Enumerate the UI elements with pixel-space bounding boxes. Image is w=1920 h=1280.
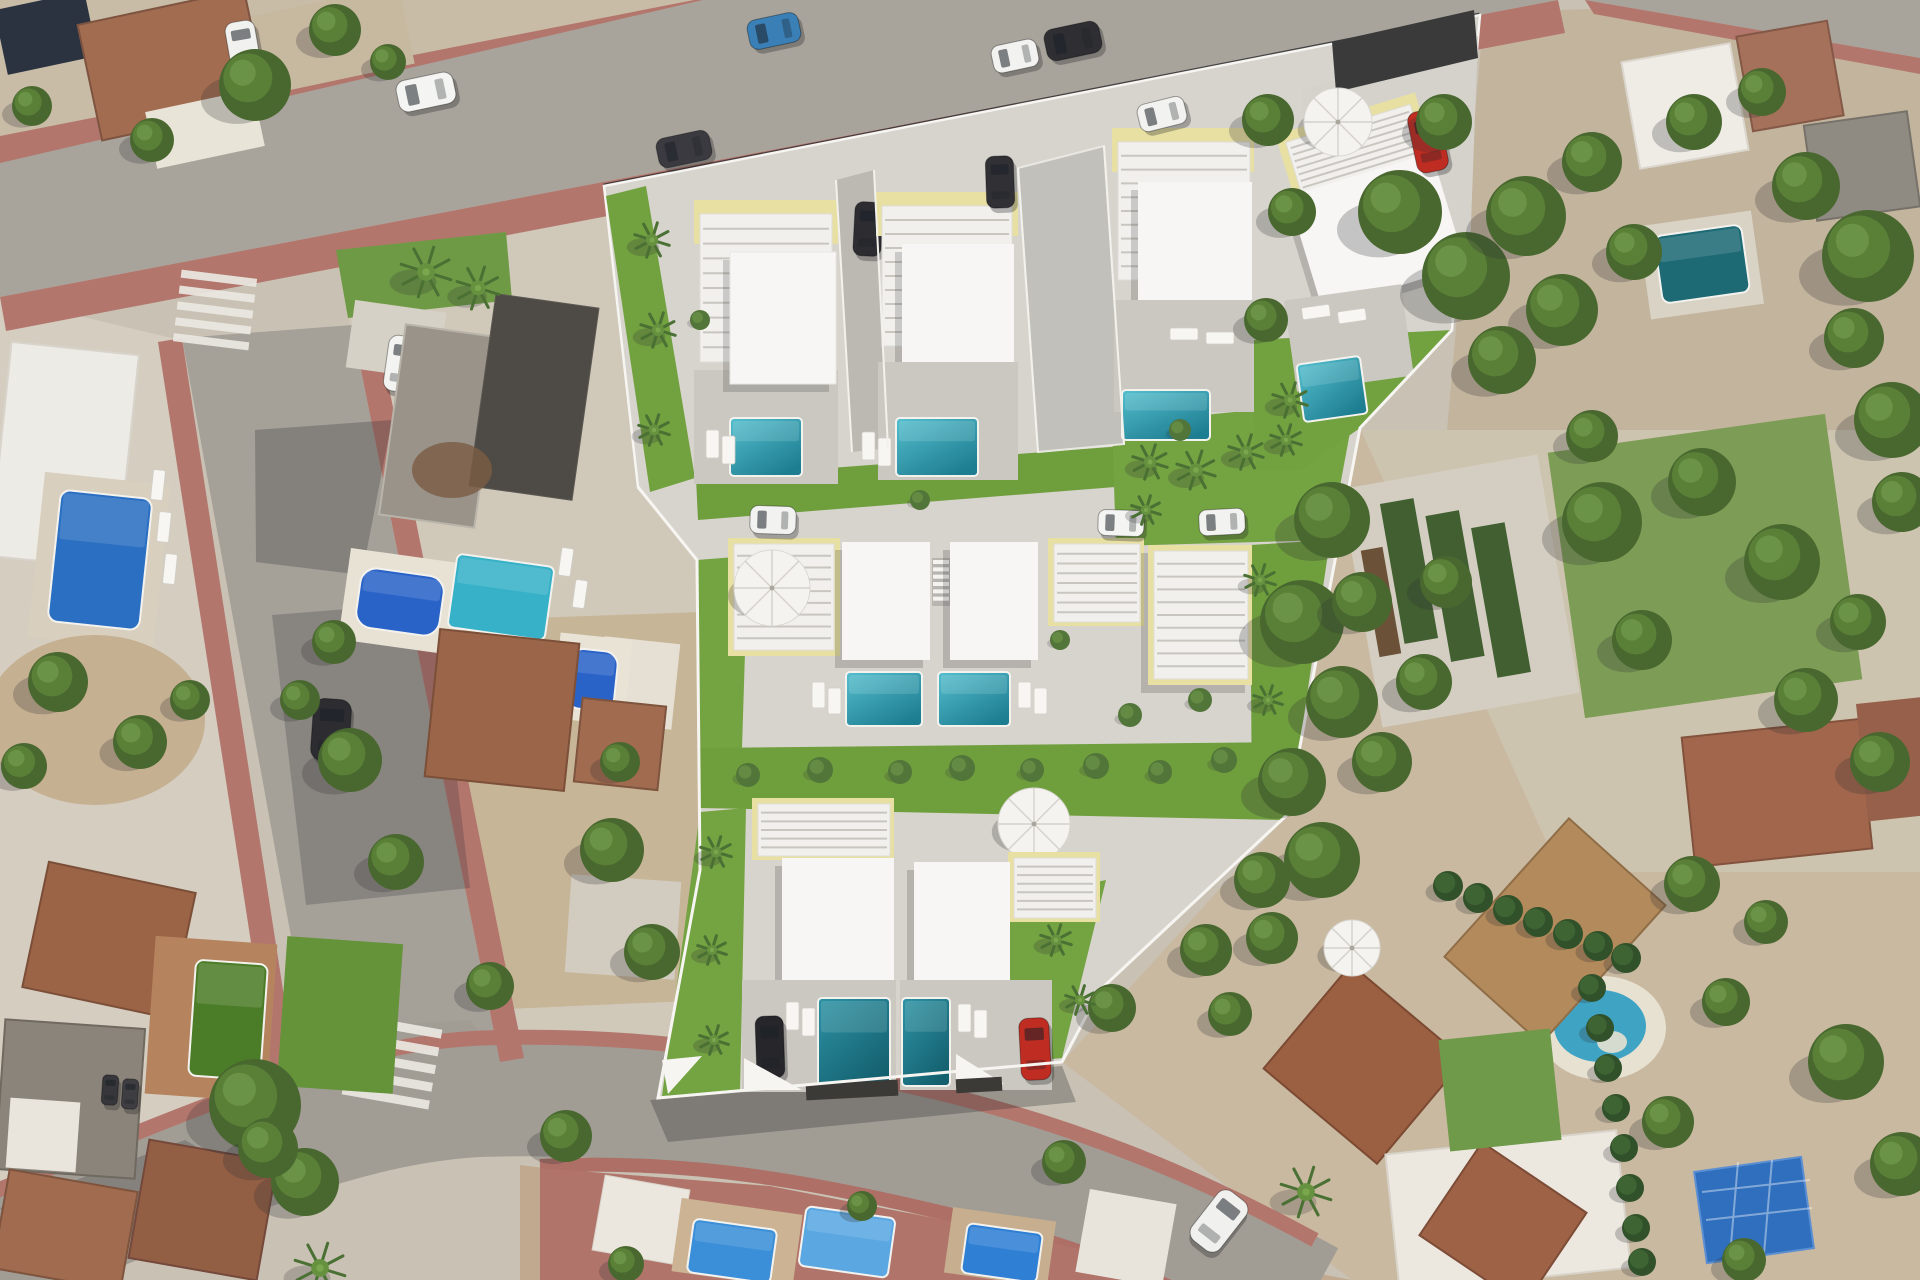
pool-green-algae-glint	[196, 963, 265, 1008]
tree-canopy-light	[230, 60, 256, 86]
tree-canopy-light	[1478, 336, 1502, 360]
tree-canopy-light	[1537, 285, 1563, 311]
parasol-pole	[1350, 946, 1355, 951]
palm-crown-center	[1144, 508, 1148, 512]
villa6-pool-glint	[849, 675, 919, 694]
palm-crown-center	[1266, 698, 1270, 702]
cypress-hedge-canopy-mid	[1596, 1056, 1615, 1075]
car-parked-dev-drive	[985, 156, 1015, 209]
car-in-carport-rear-glass	[124, 1099, 135, 1104]
tree-canopy-light	[1305, 493, 1332, 520]
tree-canopy-light	[319, 627, 335, 643]
tree-overhanging-road-canopy-light	[223, 1073, 256, 1106]
garden-bush-light	[1171, 421, 1183, 433]
tree-canopy-light	[1745, 75, 1762, 92]
sun-lounger	[1206, 332, 1234, 344]
tree-canopy-light	[1650, 1104, 1669, 1123]
pool-dark-teal	[1654, 224, 1751, 304]
villa3-roof-slab	[1138, 182, 1252, 320]
sun-lounger	[1018, 682, 1031, 708]
garden-bush-light	[1120, 705, 1133, 718]
sun-lounger	[828, 688, 841, 714]
car-parked-dev-drive-rear-glass	[858, 238, 876, 247]
scene-layers	[0, 0, 1920, 1280]
aerial-photo	[0, 0, 1920, 1280]
pool-royal-blue	[354, 566, 446, 637]
tree-canopy-light	[1268, 758, 1292, 782]
car-in-carport-windshield	[105, 1079, 116, 1086]
sun-lounger	[150, 469, 165, 500]
palm-crown-center	[714, 850, 718, 854]
suv-dark-villa9-windshield	[760, 1026, 778, 1039]
pool-west-blue-glint	[59, 493, 149, 548]
garage-door-band	[956, 1077, 1003, 1093]
tree-canopy-light	[1049, 1147, 1065, 1163]
tree-canopy-light	[375, 49, 388, 62]
cypress-hedge-canopy-mid	[1604, 1096, 1623, 1115]
palm-crown-center	[1287, 397, 1292, 402]
tree-canopy-light	[1865, 393, 1892, 420]
tree-canopy-light	[1242, 860, 1262, 880]
tree-canopy-light	[1254, 920, 1273, 939]
palm-crown-center	[712, 1038, 716, 1042]
old-lot-house	[425, 629, 580, 791]
suv-dark-villa9-rear-glass	[761, 1058, 779, 1068]
tree-canopy-light	[286, 686, 300, 700]
villa9-pool	[818, 998, 890, 1088]
villa6-pool	[846, 672, 922, 726]
tree-canopy-light	[1784, 678, 1807, 701]
tree-canopy-light	[1095, 991, 1112, 1008]
tree-canopy-light	[1317, 677, 1343, 703]
tree-canopy-light	[1428, 564, 1447, 583]
sun-lounger	[802, 1008, 815, 1036]
tree-canopy-light	[1498, 188, 1527, 217]
cypress-hedge-canopy-mid	[1495, 897, 1515, 917]
villa8-pergola	[1154, 551, 1248, 679]
tree-canopy-light	[18, 92, 32, 106]
tree-canopy-light	[1672, 864, 1692, 884]
palm-crown-center	[1078, 998, 1082, 1002]
cypress-hedge-canopy-mid	[1585, 933, 1605, 953]
villa9-pool-glint	[821, 1001, 887, 1033]
tree-canopy-light	[317, 12, 336, 31]
tree-canopy-light	[8, 750, 25, 767]
tree-canopy-light	[1295, 833, 1322, 860]
car-white-villa8-windshield	[1206, 514, 1216, 531]
palm-crown-center	[316, 1264, 323, 1271]
car-white-villa6	[749, 505, 799, 540]
sun-lounger	[162, 553, 177, 584]
palm-crown-center	[1054, 938, 1058, 942]
car-red-villa10	[1018, 1017, 1054, 1086]
garden-bush-light	[810, 760, 824, 774]
sun-lounger	[812, 682, 825, 708]
tree-canopy-light	[1251, 305, 1267, 321]
tree-canopy-light	[1614, 232, 1634, 252]
car-in-carport	[121, 1078, 139, 1109]
cypress-hedge-canopy-mid	[1624, 1216, 1643, 1235]
tree-canopy-light	[1574, 494, 1603, 523]
villa1-pool-glint	[733, 421, 799, 441]
pool-turquoise	[447, 554, 554, 641]
villa2-roof-slab	[902, 244, 1014, 378]
sun-lounger	[786, 1002, 799, 1030]
villa6-roof-slab	[842, 542, 930, 660]
garden-bush-light	[1150, 762, 1163, 775]
sun-lounger	[1034, 688, 1047, 714]
tree-canopy-light	[1571, 141, 1593, 163]
tree-canopy-light	[1574, 418, 1593, 437]
house-west-white-wing	[6, 1098, 81, 1173]
pool-tarp-covered	[687, 1218, 778, 1280]
sun-lounger	[156, 511, 171, 542]
tree-canopy-light	[590, 828, 613, 851]
car-in-carport	[101, 1074, 119, 1105]
cypress-hedge-canopy-mid	[1580, 976, 1599, 995]
sun-lounger	[706, 430, 719, 458]
zebra-stripe	[177, 301, 253, 318]
tree-canopy-light	[1881, 481, 1903, 503]
car-white-villa6	[750, 505, 797, 535]
car-white-villa8-rear-glass	[1230, 513, 1238, 530]
tree-canopy-light	[1424, 102, 1444, 122]
garden-bush-light	[1086, 756, 1100, 770]
cypress-hedge-canopy-mid	[1555, 921, 1575, 941]
palm-crown-center	[1243, 449, 1248, 454]
tree-canopy-light	[328, 738, 351, 761]
villa3-pool	[1122, 390, 1210, 440]
villa7-roof-slab	[950, 542, 1038, 660]
sun-lounger	[974, 1010, 987, 1038]
tree-canopy-light	[1371, 183, 1401, 213]
villa5-pool	[1296, 356, 1367, 422]
cypress-hedge-canopy-mid	[1630, 1250, 1649, 1269]
villa10-roof-slab	[914, 862, 1010, 980]
tree-canopy-light	[1275, 195, 1292, 212]
tree-canopy-light	[1836, 224, 1869, 257]
cypress-hedge-canopy-mid	[1612, 1136, 1631, 1155]
villa3-pool-glint	[1125, 393, 1207, 411]
tree-canopy-light	[121, 723, 140, 742]
tree-canopy-light	[1819, 1035, 1846, 1062]
tree-canopy-light	[1674, 102, 1694, 122]
tree-canopy-light	[1709, 985, 1726, 1002]
villa7-pool-glint	[941, 675, 1007, 694]
tree-canopy-light	[606, 748, 620, 762]
car-parked-dev-drive	[985, 155, 1018, 213]
villa7-pool	[938, 672, 1010, 726]
tree-canopy-light	[1751, 907, 1767, 923]
tree-canopy-light	[1435, 245, 1467, 277]
cypress-hedge-canopy-mid	[1465, 885, 1485, 905]
palm-crown-center	[710, 948, 714, 952]
car-red-villa10	[1018, 1017, 1051, 1080]
car-white-villa8	[1198, 508, 1249, 542]
tree-canopy-light	[473, 969, 490, 986]
tree-canopy-light	[1188, 932, 1207, 951]
villa9-pergola	[758, 804, 890, 856]
car-in-carport-windshield	[125, 1083, 136, 1090]
garden-bush-light	[692, 312, 703, 323]
parasol-pole	[770, 586, 775, 591]
villa7-pergola	[1054, 544, 1140, 622]
tree-canopy-light	[1782, 162, 1806, 186]
pool-west-blue	[47, 490, 152, 631]
garden-bush-light	[1214, 750, 1228, 764]
parasol-pole	[1336, 120, 1341, 125]
tree-canopy-light	[632, 932, 652, 952]
car-white-villa6-windshield	[757, 510, 767, 528]
villa10-pergola	[1014, 858, 1096, 918]
tree-canopy-light	[37, 661, 59, 683]
garden-bush-light	[1052, 632, 1063, 643]
garden-bush-light	[1190, 690, 1203, 703]
tree-canopy-light	[1833, 317, 1855, 339]
tree-canopy-light	[1341, 581, 1363, 603]
zebra-stripe	[175, 317, 251, 334]
car-dark-west-road-windshield	[319, 708, 344, 722]
villa10-pool-glint	[905, 1001, 947, 1032]
villa1-pool	[730, 418, 802, 476]
villa1-roof-slab	[730, 252, 836, 384]
palm-crown-center	[422, 268, 429, 275]
palm-crown-center	[1284, 438, 1288, 442]
palm-crown-center	[655, 327, 660, 332]
car-in-carport-rear-glass	[104, 1095, 115, 1100]
car-white-villa8	[1198, 508, 1245, 536]
tree-canopy-light	[548, 1118, 567, 1137]
palm-crown-center	[652, 428, 656, 432]
lawn-west-bright	[277, 936, 403, 1094]
lawn-southeast	[1438, 1028, 1561, 1151]
palm-crown-center	[649, 237, 654, 242]
palm-crown-center	[1258, 578, 1262, 582]
house-south-strip-2	[1075, 1189, 1176, 1280]
cypress-hedge-canopy-mid	[1613, 945, 1633, 965]
tree-canopy-light	[613, 1251, 626, 1264]
tree-canopy-light	[1678, 458, 1702, 482]
sun-lounger	[1170, 328, 1198, 340]
tree-canopy-light	[1880, 1142, 1903, 1165]
palm-crown-center	[1193, 467, 1199, 473]
car-parked-dev-drive-rear-glass	[991, 191, 1009, 199]
tree-canopy-light	[852, 1196, 863, 1207]
roof-southeast-1	[1682, 719, 1873, 867]
tree-canopy-light	[1250, 102, 1269, 121]
tree-canopy-light	[1621, 619, 1643, 641]
parasol-pole	[1032, 822, 1037, 827]
garden-bush-light	[952, 758, 966, 772]
sun-lounger	[862, 432, 875, 460]
car-red-villa10-windshield	[1024, 1027, 1044, 1040]
garden-bush-light	[738, 765, 751, 778]
villa2-pool-glint	[899, 421, 975, 441]
sun-lounger	[722, 436, 735, 464]
garden-bush-light	[890, 762, 903, 775]
car-white-villa6-rear-glass	[781, 511, 789, 529]
tree	[1167, 924, 1232, 978]
roof-brown-patch	[412, 442, 492, 498]
villa9-roof-slab	[782, 858, 894, 980]
tree-canopy-light	[376, 842, 396, 862]
tree-canopy-light	[1273, 593, 1303, 623]
garden-bush-light	[1022, 760, 1035, 773]
cypress-hedge-canopy-mid	[1435, 873, 1455, 893]
sun-lounger	[958, 1004, 971, 1032]
aerial-photo-stage	[0, 0, 1920, 1280]
tree-canopy-light	[1215, 999, 1231, 1015]
tree-canopy-light	[1361, 741, 1383, 763]
car-parked-dev-drive-windshield	[990, 164, 1008, 175]
tree-canopy-light	[176, 686, 190, 700]
tree-canopy-light	[247, 1127, 269, 1149]
tree-canopy-light	[1404, 662, 1424, 682]
cypress-hedge-canopy-mid	[1525, 909, 1545, 929]
palm-crown-center	[475, 285, 481, 291]
palm-crown-center	[1302, 1188, 1309, 1195]
sun-lounger	[878, 438, 891, 466]
garden-bush-light	[912, 492, 923, 503]
tree-canopy-light	[1729, 1245, 1745, 1261]
villa2-pool	[896, 418, 978, 476]
palm-crown-center	[1147, 459, 1152, 464]
pool-tarp-covered	[961, 1223, 1043, 1280]
cypress-hedge-canopy-mid	[1618, 1176, 1637, 1195]
tree-canopy-light	[1859, 741, 1881, 763]
tree-canopy-light	[137, 125, 153, 141]
tree-canopy-light	[1838, 602, 1858, 622]
palm-tree	[284, 1243, 345, 1280]
car-white-villa7-windshield	[1105, 514, 1115, 531]
tree-canopy-light	[1755, 535, 1782, 562]
cypress-hedge-canopy-mid	[1588, 1016, 1607, 1035]
